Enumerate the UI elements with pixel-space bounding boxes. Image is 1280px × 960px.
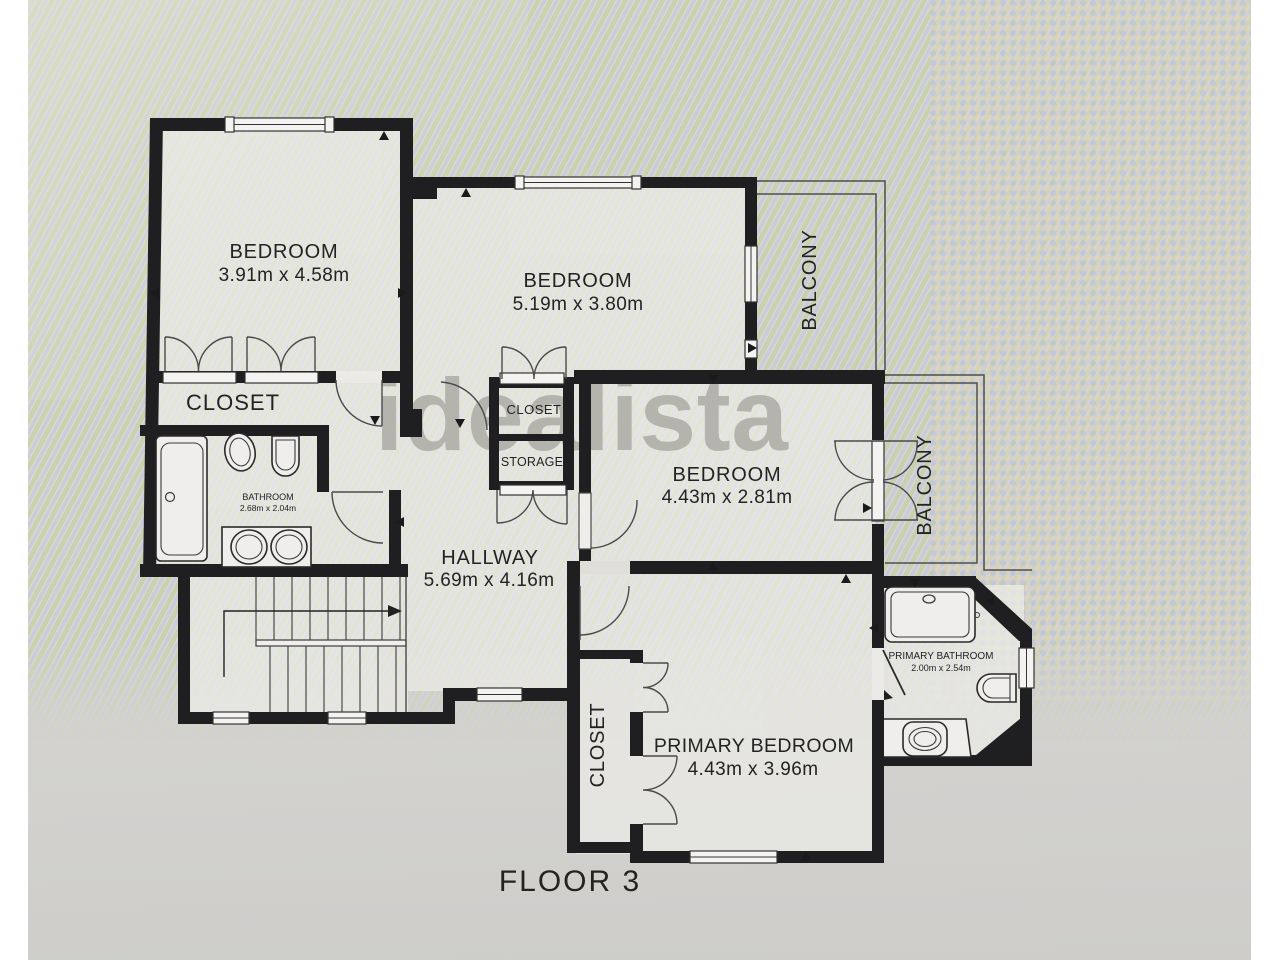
svg-text:2.00m x 2.54m: 2.00m x 2.54m [911, 663, 971, 673]
svg-text:HALLWAY: HALLWAY [441, 547, 538, 569]
svg-text:STORAGE: STORAGE [501, 455, 563, 469]
svg-text:2.68m x 2.04m: 2.68m x 2.04m [240, 503, 296, 513]
svg-text:BATHROOM: BATHROOM [242, 492, 293, 502]
svg-text:FLOOR 3: FLOOR 3 [499, 865, 641, 898]
svg-text:BALCONY: BALCONY [799, 229, 821, 330]
svg-text:3.91m x 4.58m: 3.91m x 4.58m [219, 265, 350, 286]
svg-text:BALCONY: BALCONY [914, 434, 936, 535]
svg-text:5.19m x 3.80m: 5.19m x 3.80m [513, 294, 644, 315]
svg-text:PRIMARY BATHROOM: PRIMARY BATHROOM [888, 651, 993, 662]
svg-text:4.43m x 2.81m: 4.43m x 2.81m [662, 487, 793, 508]
svg-text:CLOSET: CLOSET [506, 402, 561, 417]
svg-text:BEDROOM: BEDROOM [230, 241, 339, 263]
svg-text:CLOSET: CLOSET [186, 390, 280, 415]
svg-text:BEDROOM: BEDROOM [524, 270, 633, 292]
svg-text:PRIMARY BEDROOM: PRIMARY BEDROOM [654, 735, 854, 757]
svg-text:CLOSET: CLOSET [587, 703, 609, 788]
svg-text:4.43m x 3.96m: 4.43m x 3.96m [688, 759, 819, 780]
svg-text:5.69m x 4.16m: 5.69m x 4.16m [424, 570, 555, 591]
svg-text:BEDROOM: BEDROOM [673, 464, 782, 486]
